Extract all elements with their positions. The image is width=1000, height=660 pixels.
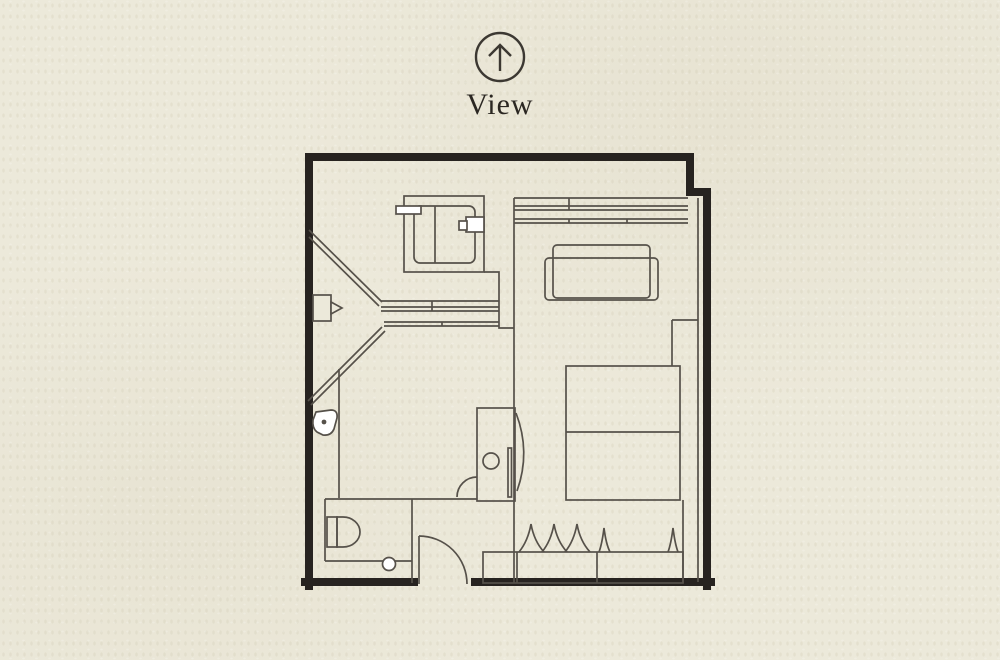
wall-left-top-right	[309, 157, 707, 586]
bathtub	[396, 196, 514, 328]
window	[514, 198, 698, 583]
sofa-seat	[545, 258, 658, 300]
closet	[483, 500, 683, 583]
hanger-icon	[565, 524, 590, 552]
sliding-door-panel	[508, 448, 512, 497]
hanger-icon	[519, 524, 544, 552]
bathtub-faucet	[466, 217, 484, 232]
curved-door	[516, 413, 524, 491]
floor-plan	[0, 0, 1000, 660]
vanity-door-arc	[457, 477, 477, 497]
bed	[566, 320, 698, 500]
outer-walls	[305, 157, 711, 586]
sofa-back	[553, 245, 650, 298]
bathtub-inner	[414, 206, 475, 263]
wall-shower-fixture	[313, 295, 331, 321]
washbasin	[483, 453, 499, 469]
bathtub-shelf	[396, 206, 421, 214]
toilet-tank	[327, 517, 337, 547]
hanger-icon	[599, 528, 610, 552]
door-knob	[383, 558, 396, 571]
bed-outline	[566, 366, 680, 500]
shower-area	[313, 295, 342, 498]
hanger-icon	[542, 524, 567, 552]
toilet-room	[325, 499, 412, 571]
sofa	[545, 245, 658, 300]
hanger-icon	[668, 528, 678, 552]
entrance-door-swing	[419, 536, 467, 584]
bathroom-wall	[484, 272, 514, 328]
toilet-bowl	[337, 517, 360, 547]
entrance	[325, 499, 477, 584]
